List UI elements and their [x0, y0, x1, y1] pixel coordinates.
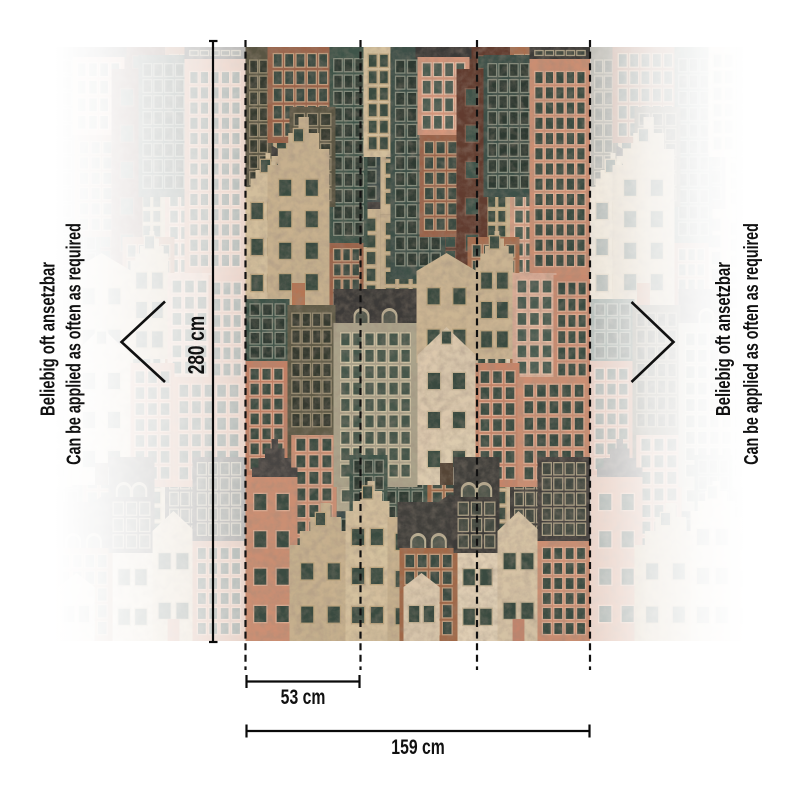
svg-text:280 cm: 280 cm: [185, 316, 210, 374]
svg-text:Beliebig oft ansetzbar: Beliebig oft ansetzbar: [712, 262, 735, 416]
svg-text:Beliebig oft ansetzbar: Beliebig oft ansetzbar: [36, 262, 59, 416]
svg-text:Can be applied as often as req: Can be applied as often as required: [740, 223, 763, 465]
svg-text:159 cm: 159 cm: [391, 735, 444, 759]
svg-text:Can be applied as often as req: Can be applied as often as required: [62, 223, 85, 465]
svg-text:53 cm: 53 cm: [281, 685, 326, 709]
